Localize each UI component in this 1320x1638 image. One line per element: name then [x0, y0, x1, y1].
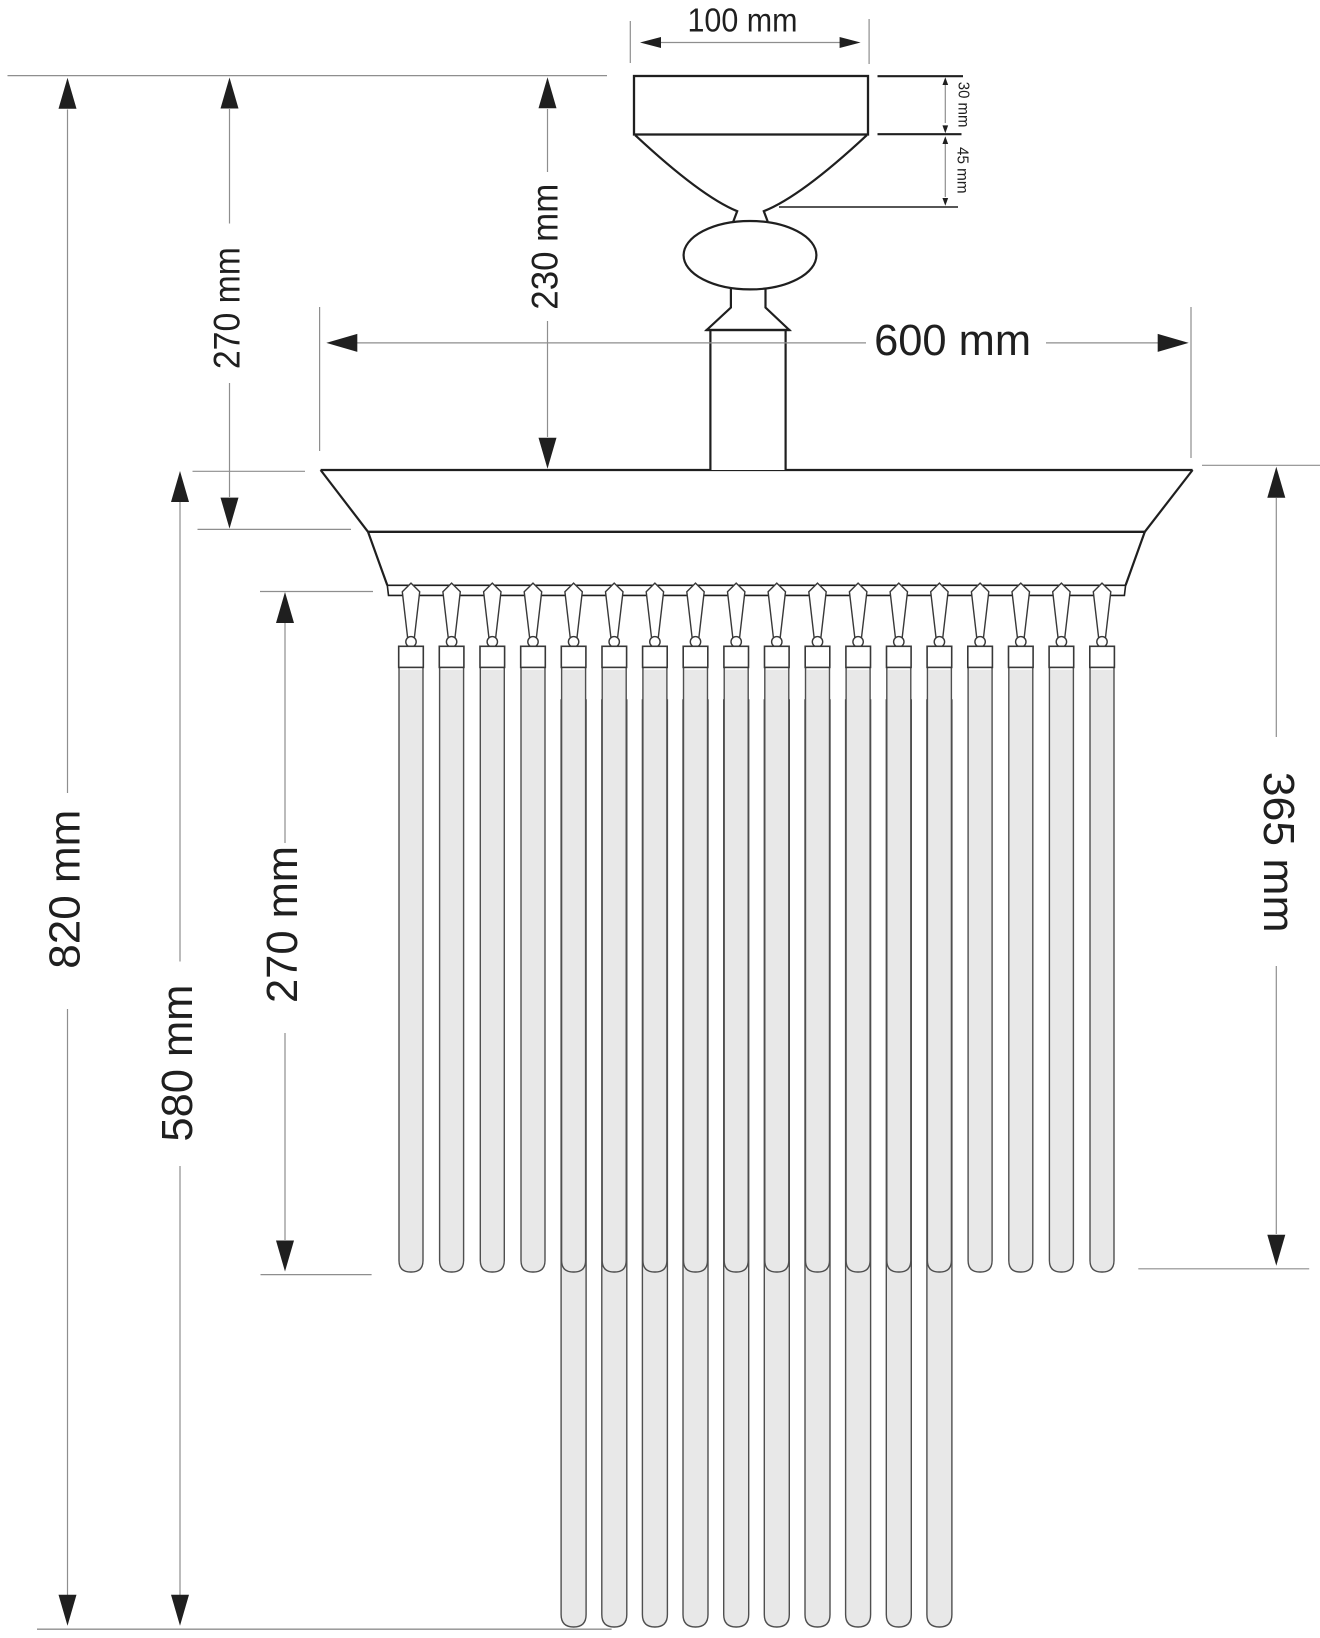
svg-text:270 mm: 270 mm: [258, 846, 307, 1003]
svg-text:820 mm: 820 mm: [40, 810, 89, 969]
svg-text:270 mm: 270 mm: [206, 247, 247, 369]
svg-text:100 mm: 100 mm: [688, 2, 798, 39]
svg-text:30 mm: 30 mm: [955, 82, 972, 128]
svg-text:580 mm: 580 mm: [153, 985, 202, 1142]
svg-text:600 mm: 600 mm: [874, 316, 1031, 365]
svg-text:365 mm: 365 mm: [1254, 772, 1303, 933]
svg-text:45 mm: 45 mm: [954, 147, 971, 194]
svg-text:230 mm: 230 mm: [524, 184, 565, 310]
